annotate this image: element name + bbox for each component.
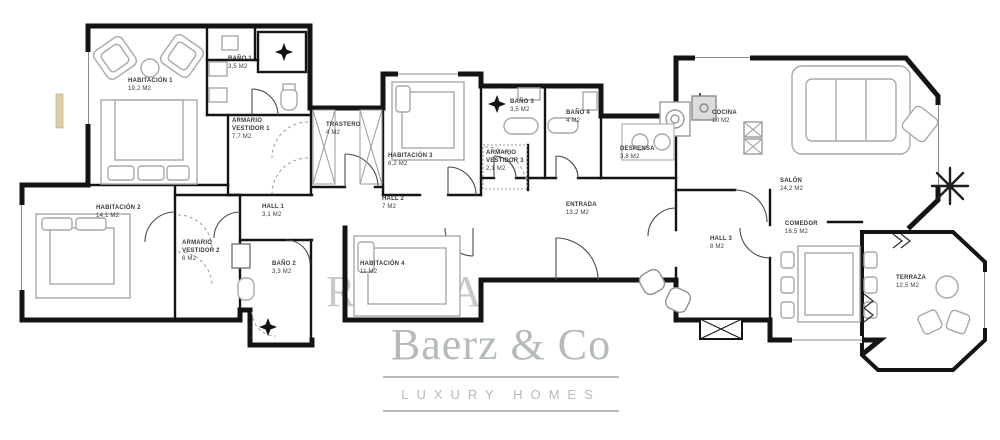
room-label-bano-1: BAÑO 13,5 m2: [228, 56, 252, 72]
room-label-trastero: TRASTERO4 m2: [326, 122, 361, 138]
room-label-habitacion-1: HABITACIÓN 119,2 m2: [128, 78, 173, 94]
room-label-habitacion-2: HABITACIÓN 214,1 m2: [96, 205, 141, 221]
brand-tagline: LUXURY HOMES: [383, 387, 619, 402]
room-label-entrada: ENTRADA13,2 m2: [566, 202, 597, 218]
room-label-bano-3: BAÑO 33,5 m2: [510, 99, 534, 115]
room-label-terraza: TERRAZA12,5 m2: [896, 275, 926, 291]
wardrobe-arcs: [178, 122, 527, 336]
room-label-cocina: COCINA10 m2: [712, 110, 737, 126]
room-label-salon: SALÓN24,2 M2: [780, 178, 803, 194]
room-label-hall-1: HALL 13,1 m2: [262, 204, 284, 220]
room-label-despensa: DESPENSA3,8 m2: [620, 146, 655, 162]
plant-icon: [932, 168, 968, 204]
room-label-vestidor-1: ARMARIO VESTIDOR 17,7 m2: [232, 118, 274, 141]
room-label-bano-4: BAÑO 44 m2: [566, 110, 590, 126]
brand-logo-text: Baerz & Co: [383, 322, 619, 368]
room-label-comedor: COMEDOR16,5 M2: [785, 221, 818, 237]
room-label-vestidor-2: ARMARIO VESTIDOR 26 m2: [182, 240, 224, 263]
floorplan-canvas: R by A: [0, 0, 1000, 440]
elevator-icon: [700, 319, 742, 339]
furniture: [36, 32, 971, 335]
room-label-vestidor-3: ARMARIO VESTIDOR 32,1 m2: [486, 150, 528, 173]
room-label-bano-2: BAÑO 23,3 m2: [272, 261, 296, 277]
room-label-habitacion-3: HABITACIÓN 38,2 m2: [388, 153, 433, 169]
brand-divider-top: [383, 376, 619, 378]
window-sill-accent: [56, 94, 63, 128]
room-label-hall-3: HALL 38 m2: [710, 236, 732, 252]
brand-watermark: Baerz & Co LUXURY HOMES: [383, 322, 619, 412]
brand-divider-bottom: [383, 410, 619, 412]
room-label-hall-2: HALL 27 m2: [382, 196, 404, 212]
terrace-walls: [862, 232, 985, 370]
room-label-habitacion-4: HABITACIÓN 411 m2: [360, 261, 405, 277]
